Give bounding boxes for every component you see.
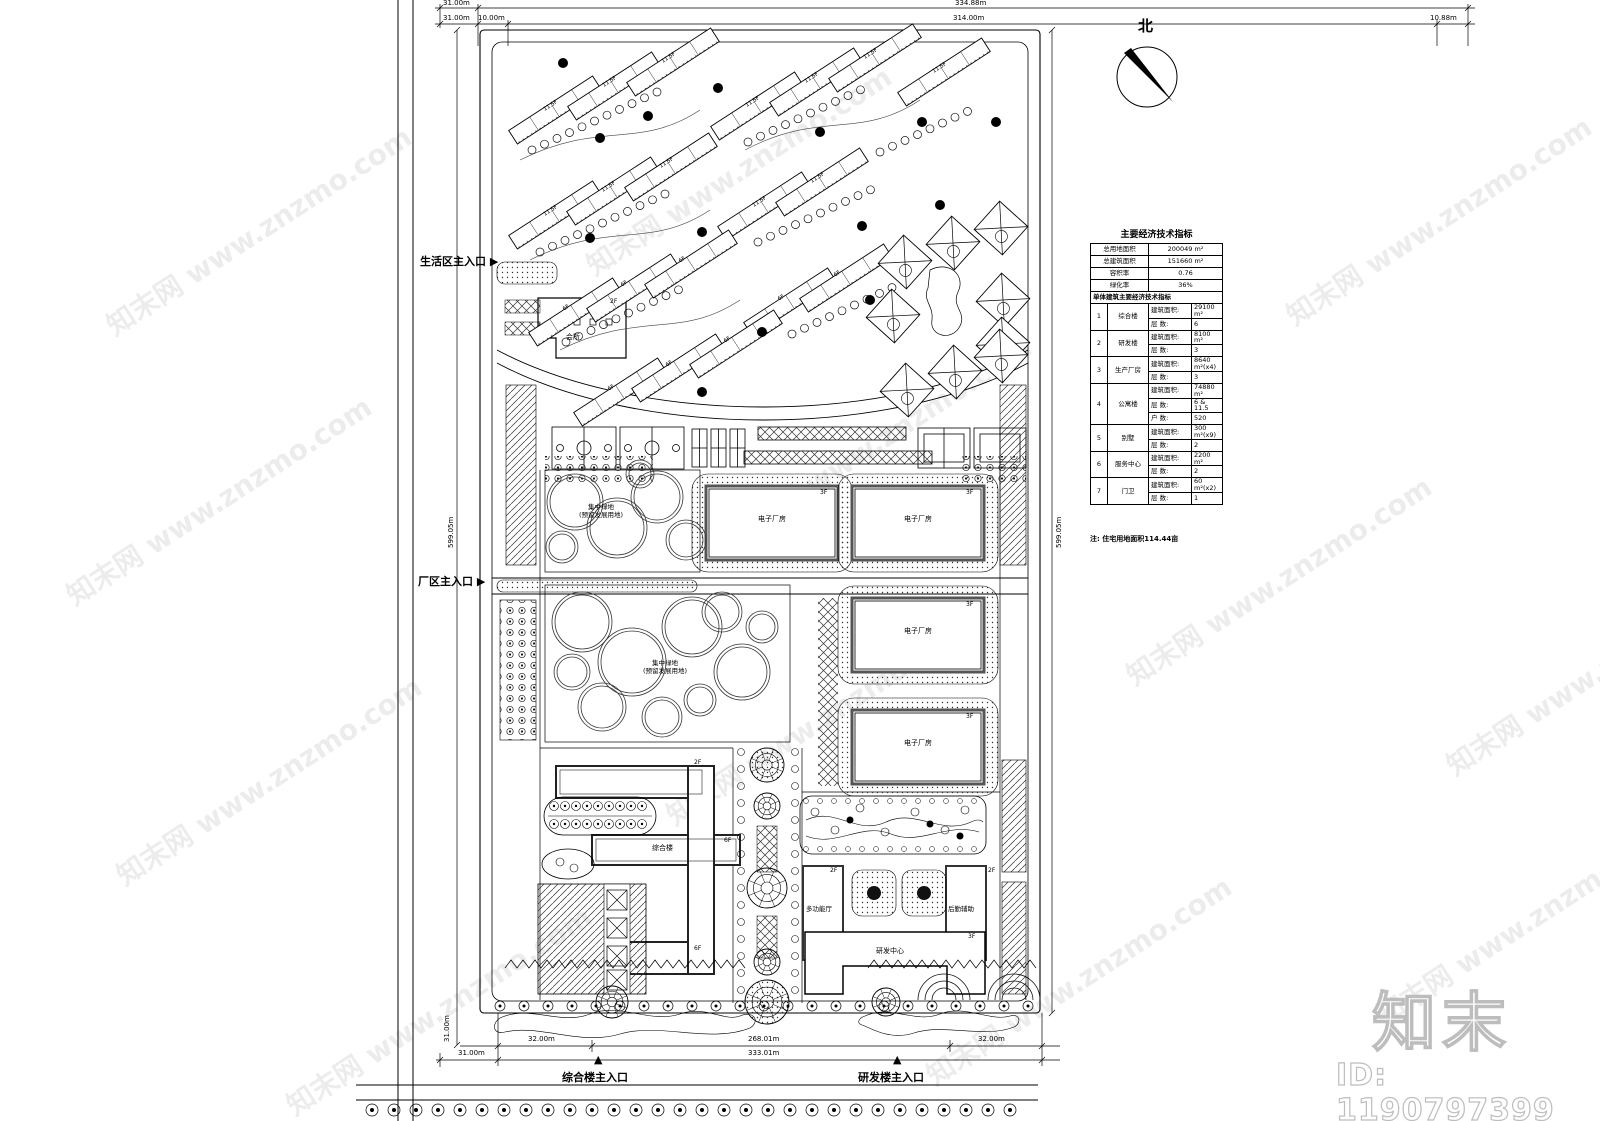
item-value: 60 m²(x2)	[1192, 478, 1223, 493]
tree	[541, 140, 549, 148]
tree	[738, 919, 745, 926]
tree-strip	[818, 598, 838, 786]
tree-dark	[935, 200, 945, 210]
tree	[566, 129, 574, 137]
tree	[792, 868, 799, 875]
tree	[867, 186, 875, 194]
item-value: 74880 m²	[1192, 383, 1223, 398]
green-circle	[554, 654, 590, 690]
tree-dark	[643, 111, 653, 121]
item-no: 5	[1091, 425, 1108, 452]
floor-label: 2F	[694, 760, 701, 767]
floor-label: 6F	[694, 946, 701, 953]
tree	[817, 209, 825, 217]
tree-dark	[697, 387, 707, 397]
dim-label: 10.88m	[1430, 15, 1457, 23]
tree	[738, 936, 745, 943]
factory-label: 电子厂房	[904, 740, 932, 748]
floor-label: 2F	[610, 299, 617, 306]
item-sublabel: 层 数:	[1149, 493, 1192, 505]
tree-dark	[991, 117, 1001, 127]
tree	[889, 142, 897, 150]
tree	[914, 131, 922, 139]
tree	[636, 202, 644, 210]
green-circle	[555, 595, 609, 649]
tree	[876, 289, 884, 297]
dim-label: 268.01m	[748, 1036, 779, 1044]
green-circle	[714, 644, 770, 700]
item-name: 服务中心	[1108, 451, 1149, 478]
tree	[876, 148, 884, 156]
summary-value: 200049 m²	[1149, 244, 1223, 256]
green-area-label: 集中绿地 (预留发展用地)	[630, 659, 700, 675]
factory-buildings	[692, 474, 998, 796]
tree	[792, 221, 800, 229]
entrance-arrow-icon: ▶	[477, 575, 485, 588]
north-label: 北	[1138, 18, 1153, 35]
tree	[738, 902, 745, 909]
table-row: 容积率0.76	[1091, 268, 1223, 280]
villa-building	[878, 235, 932, 289]
green-circle	[645, 700, 679, 734]
item-sublabel: 层 数:	[1149, 466, 1192, 478]
logistics-label: 后勤辅助	[948, 906, 974, 913]
summary-label: 总建筑面积	[1091, 256, 1149, 268]
item-sublabel: 层 数:	[1149, 345, 1192, 357]
dim-label: 333.01m	[748, 1050, 779, 1058]
tree	[792, 953, 799, 960]
green-label-line2: (预留发展用地)	[630, 667, 700, 675]
tree	[792, 970, 799, 977]
tree	[549, 242, 557, 250]
entrance-living-label: 生活区主入口	[420, 255, 486, 268]
floor-label: 3F	[966, 490, 973, 497]
tree	[788, 330, 796, 338]
tree	[738, 766, 745, 773]
dim-label: 31.00m	[444, 1015, 452, 1042]
floor-label: 6F	[724, 838, 731, 845]
item-value: 8640 m²(x4)	[1192, 357, 1223, 372]
summary-label: 绿化率	[1091, 280, 1149, 292]
floor-label: 2F	[830, 868, 837, 875]
table-row: 总用地面积200049 m²	[1091, 244, 1223, 256]
entrance-factory: 厂区主入口 ▶	[418, 576, 485, 588]
table-row: 1综合楼建筑面积:29100 m²	[1091, 304, 1223, 319]
floor-label: 3F	[820, 490, 827, 497]
item-sublabel: 层 数:	[1149, 318, 1192, 330]
clubhouse-label: 会所	[566, 334, 580, 342]
tree	[951, 113, 959, 121]
tree-dark	[595, 133, 605, 143]
tree	[738, 868, 745, 875]
entrance-complex-label: 综合楼主入口	[562, 1072, 628, 1084]
tree	[599, 219, 607, 227]
green-circle	[634, 474, 680, 520]
tree	[553, 134, 561, 142]
table-subheader: 单体建筑主要经济技术指标	[1091, 292, 1223, 304]
tree	[792, 817, 799, 824]
tree	[792, 851, 799, 858]
tree	[738, 749, 745, 756]
tree	[637, 303, 645, 311]
table-row: 绿化率36%	[1091, 280, 1223, 292]
tree	[792, 800, 799, 807]
item-value: 3	[1192, 371, 1223, 383]
item-name: 门卫	[1108, 478, 1149, 505]
green-label-line1: 集中绿地	[630, 659, 700, 667]
tree-dark	[713, 83, 723, 93]
tree	[650, 297, 658, 305]
item-sublabel: 建筑面积:	[1149, 383, 1192, 398]
tree	[826, 313, 834, 321]
apartment-building	[898, 38, 991, 106]
rnd-campus	[800, 796, 986, 994]
tree	[844, 92, 852, 100]
item-sublabel: 建筑面积:	[1149, 357, 1192, 372]
tree	[838, 307, 846, 315]
factory-label: 电子厂房	[758, 516, 786, 524]
summary-value: 151660 m²	[1149, 256, 1223, 268]
item-value: 3	[1192, 345, 1223, 357]
rnd-center-label: 研发中心	[876, 948, 904, 956]
factory-label: 电子厂房	[904, 628, 932, 636]
villa-lake	[926, 267, 962, 336]
tree	[578, 123, 586, 131]
tree	[792, 834, 799, 841]
green-circle	[687, 687, 713, 713]
green-circle	[662, 597, 722, 657]
tree	[811, 808, 819, 816]
item-value: 300 m²(x9)	[1192, 425, 1223, 440]
tree	[611, 213, 619, 221]
entrance-arrow-icon: ▶	[490, 255, 498, 268]
tree	[744, 138, 752, 146]
shrub	[494, 1010, 755, 1037]
tree-dark	[847, 817, 854, 824]
tree	[779, 226, 787, 234]
table-row: 6服务中心建筑面积:2200 m²	[1091, 451, 1223, 466]
tree-dark	[585, 233, 595, 243]
tree	[832, 97, 840, 105]
dim-label: 314.00m	[953, 15, 984, 23]
tree-dark	[857, 221, 867, 231]
floor-label: 3F	[966, 714, 973, 721]
summary-label: 容积率	[1091, 268, 1149, 280]
green-circle	[578, 683, 626, 731]
tree	[961, 806, 969, 814]
floor-label: 2F	[988, 868, 995, 875]
tree	[813, 318, 821, 326]
tree	[675, 286, 683, 294]
item-sublabel: 建筑面积:	[1149, 451, 1192, 466]
green-circle	[547, 474, 603, 530]
tree	[536, 248, 544, 256]
plaza-fountain	[754, 949, 780, 975]
tree	[603, 111, 611, 119]
tree-dark	[558, 58, 568, 68]
tree	[801, 324, 809, 332]
dim-label: 599.05m	[1056, 517, 1064, 548]
item-sublabel: 层 数:	[1149, 439, 1192, 451]
tree	[591, 117, 599, 125]
shrub	[859, 1011, 1019, 1036]
tree	[792, 936, 799, 943]
item-no: 2	[1091, 330, 1108, 357]
item-name: 公寓楼	[1108, 383, 1149, 424]
table-row: 单体建筑主要经济技术指标	[1091, 292, 1223, 304]
tree	[792, 902, 799, 909]
tree	[757, 132, 765, 140]
entrance-rnd-label: 研发楼主入口	[858, 1072, 924, 1084]
central-axis	[757, 826, 777, 958]
dim-label: 32.00m	[978, 1036, 1005, 1044]
tree	[661, 190, 669, 198]
tree	[792, 783, 799, 790]
tree	[738, 800, 745, 807]
tree	[941, 826, 949, 834]
item-sublabel: 建筑面积:	[1149, 478, 1192, 493]
tree	[561, 236, 569, 244]
item-value: 29100 m²	[1192, 304, 1223, 319]
green-label-line1: 集中绿地	[566, 503, 636, 511]
green-circle	[550, 477, 600, 527]
green-circle	[552, 592, 612, 652]
green-circle	[746, 611, 778, 643]
image-id: ID: 1190797399	[1336, 1058, 1600, 1121]
tree	[829, 203, 837, 211]
tree	[653, 88, 661, 96]
dim-label: 599.05m	[448, 517, 456, 548]
green-circle	[684, 684, 716, 716]
tree	[854, 192, 862, 200]
table-row: 2研发楼建筑面积:8100 m²	[1091, 330, 1223, 345]
item-sublabel: 户 数:	[1149, 413, 1192, 425]
green-label-line2: (预留发展用地)	[566, 511, 636, 519]
tree	[767, 232, 775, 240]
tree	[738, 783, 745, 790]
item-name: 综合楼	[1108, 304, 1149, 331]
table-row: 4公寓楼建筑面积:74880 m²	[1091, 383, 1223, 398]
table-row: 总建筑面积151660 m²	[1091, 256, 1223, 268]
tree	[738, 970, 745, 977]
tree	[792, 919, 799, 926]
table-row: 3生产厂房建筑面积:8640 m²(x4)	[1091, 357, 1223, 372]
green-circle	[631, 471, 683, 523]
multifunction-label: 多功能厅	[806, 906, 832, 913]
tree	[794, 115, 802, 123]
tree	[831, 826, 839, 834]
indicator-table: 总用地面积200049 m²总建筑面积151660 m²容积率0.76绿化率36…	[1090, 243, 1223, 505]
item-sublabel: 建筑面积:	[1149, 304, 1192, 319]
tree	[738, 987, 745, 994]
tree	[782, 121, 790, 129]
tree	[574, 231, 582, 239]
green-circle	[642, 697, 682, 737]
dim-label: 31.00m	[458, 1050, 485, 1058]
green-circle	[749, 614, 775, 640]
tree	[857, 86, 865, 94]
floor-label: 3F	[968, 934, 975, 941]
item-value: 2200 m²	[1192, 451, 1223, 466]
item-no: 3	[1091, 357, 1108, 384]
item-sublabel: 层 数:	[1149, 371, 1192, 383]
item-name: 别墅	[1108, 425, 1149, 452]
summary-label: 总用地面积	[1091, 244, 1149, 256]
plaza-fountain	[754, 793, 780, 819]
tree	[792, 766, 799, 773]
tree	[662, 292, 670, 300]
item-sublabel: 建筑面积:	[1149, 425, 1192, 440]
dim-label: 31.00m	[443, 15, 470, 23]
dim-label: 32.00m	[528, 1036, 555, 1044]
tree	[807, 109, 815, 117]
tree	[804, 215, 812, 223]
villa-building	[974, 201, 1028, 255]
item-value: 6 & 11.5	[1192, 398, 1223, 413]
tree-dark	[815, 127, 825, 137]
villa-building	[926, 216, 980, 270]
tree-dark	[757, 327, 767, 337]
item-sublabel: 层 数:	[1149, 398, 1192, 413]
item-value: 2	[1192, 466, 1223, 478]
entrance-arrow-icon: ▲	[594, 1054, 602, 1066]
dim-label: 31.00m	[443, 0, 470, 8]
item-value: 1	[1192, 493, 1223, 505]
tree	[792, 749, 799, 756]
tree	[738, 953, 745, 960]
green-circle	[546, 531, 578, 563]
green-circle	[549, 534, 575, 560]
entrance-factory-label: 厂区主入口	[418, 575, 473, 588]
plaza-fountain	[750, 748, 784, 782]
dim-label: 10.00m	[478, 15, 505, 23]
item-no: 4	[1091, 383, 1108, 424]
entrance-living: 生活区主入口 ▶	[420, 256, 498, 268]
item-no: 7	[1091, 478, 1108, 505]
tree	[926, 125, 934, 133]
tree	[624, 207, 632, 215]
table-note: 注: 住宅用地面积114.44亩	[1090, 534, 1178, 544]
item-no: 1	[1091, 304, 1108, 331]
green-circle	[717, 647, 767, 697]
table-row: 7门卫建筑面积:60 m²(x2)	[1091, 478, 1223, 493]
dim-label: 334.88m	[955, 0, 986, 8]
item-value: 6	[1192, 318, 1223, 330]
tree-dark	[697, 227, 707, 237]
summary-value: 0.76	[1149, 268, 1223, 280]
tree	[792, 885, 799, 892]
villa-building	[866, 289, 920, 343]
tree	[754, 238, 762, 246]
tree	[641, 94, 649, 102]
tree	[769, 126, 777, 134]
complex-label: 综合楼	[652, 845, 673, 853]
tree	[911, 808, 919, 816]
item-name: 研发楼	[1108, 330, 1149, 357]
tree	[628, 100, 636, 108]
green-circle	[665, 600, 719, 654]
green-circle	[581, 686, 623, 728]
tree	[792, 987, 799, 994]
item-name: 生产厂房	[1108, 357, 1149, 384]
tree	[528, 146, 536, 154]
tree	[856, 804, 864, 812]
tree	[649, 196, 657, 204]
tree	[964, 107, 972, 115]
item-value: 520	[1192, 413, 1223, 425]
tree	[819, 103, 827, 111]
entrance-arrow-icon: ▲	[893, 1054, 901, 1066]
green-area-label: 集中绿地 (预留发展用地)	[566, 503, 636, 519]
tree-dark	[957, 833, 964, 840]
table-title: 主要经济技术指标	[1090, 227, 1223, 240]
plaza-fountain	[747, 868, 787, 908]
tree	[901, 136, 909, 144]
green-circle	[557, 657, 587, 687]
tree	[738, 885, 745, 892]
tree	[738, 817, 745, 824]
brand-logo: 知末	[1372, 972, 1512, 1064]
tree	[939, 119, 947, 127]
north-arrow	[1117, 47, 1177, 107]
summary-value: 36%	[1149, 280, 1223, 292]
site-plan-canvas: 知末网 www.znzmo.com知末网 www.znzmo.com知末网 ww…	[0, 0, 1600, 1121]
item-sublabel: 建筑面积:	[1149, 330, 1192, 345]
tree	[851, 301, 859, 309]
villa-building	[928, 345, 982, 399]
item-value: 8100 m²	[1192, 330, 1223, 345]
factory-label: 电子厂房	[904, 516, 932, 524]
item-no: 6	[1091, 451, 1108, 478]
item-value: 2	[1192, 439, 1223, 451]
plan-drawing	[0, 0, 1600, 1121]
tree-dark	[917, 117, 927, 127]
floor-label: 3F	[966, 602, 973, 609]
table-row: 5别墅建筑面积:300 m²(x9)	[1091, 425, 1223, 440]
tree	[842, 197, 850, 205]
tree	[586, 225, 594, 233]
tree-dark	[865, 295, 875, 305]
tree-dark	[927, 821, 934, 828]
tree	[616, 105, 624, 113]
